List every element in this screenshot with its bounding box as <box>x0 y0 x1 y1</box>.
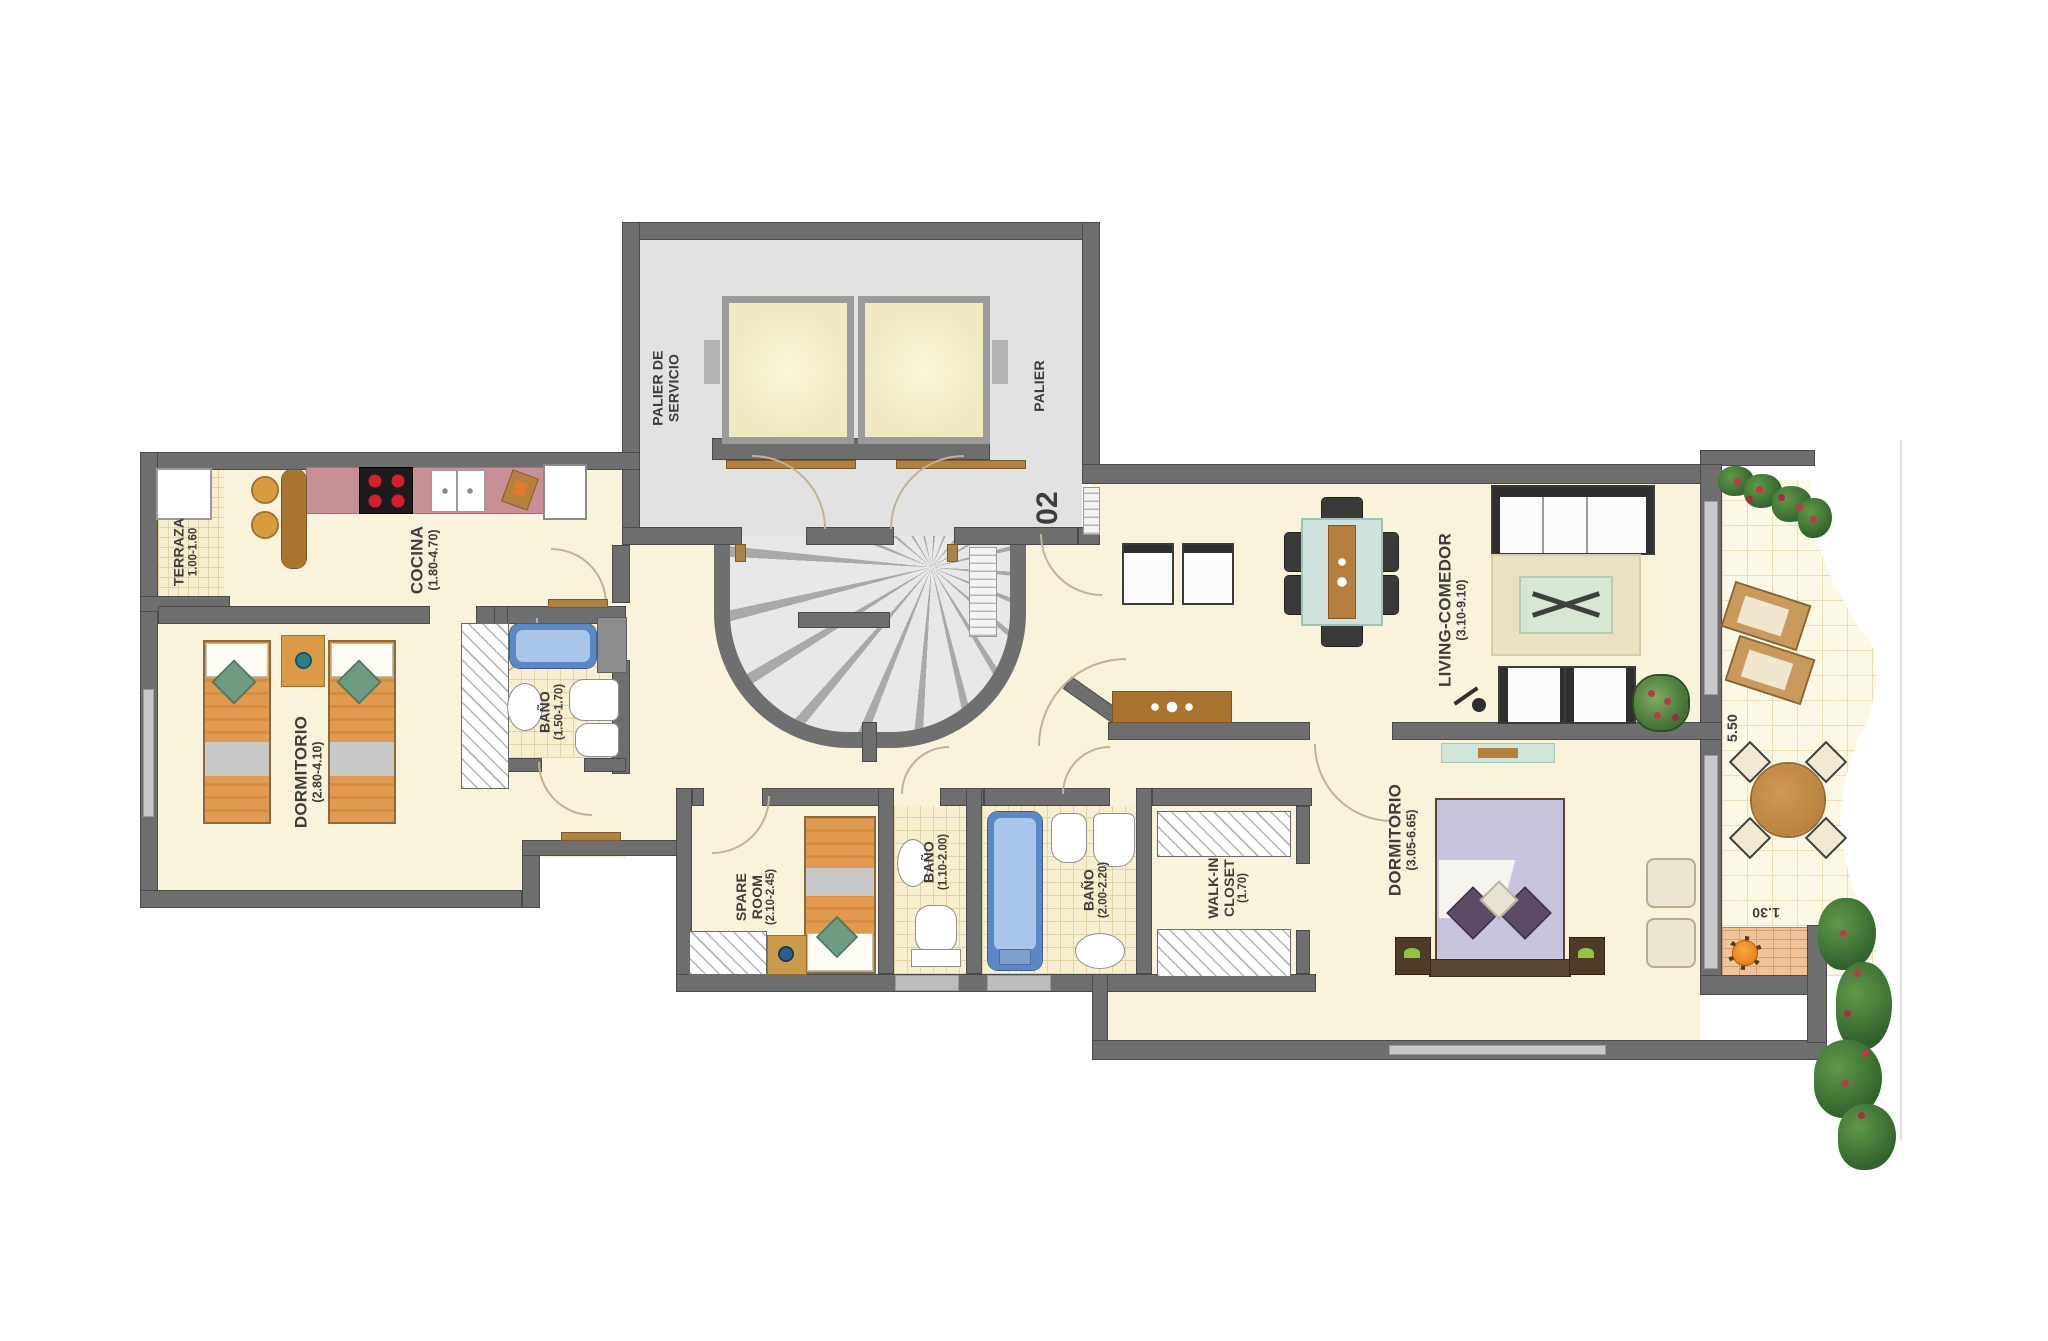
wall-palier-right <box>1082 222 1100 484</box>
duct-hatch-1 <box>896 976 958 990</box>
toilet-bath1 <box>570 680 618 720</box>
breakfast-bar <box>282 470 306 568</box>
flower-bed-top-4 <box>1798 498 1832 538</box>
room-label-dormitorio2: DORMITORIO(3.05-6.65) <box>1385 784 1418 896</box>
nightstand-plant-left <box>1404 948 1420 958</box>
bed-headboard <box>1430 960 1570 976</box>
jamb-stair-right <box>948 545 957 561</box>
dresser-bedroom-center <box>1478 748 1518 758</box>
closet-unit-top <box>1158 812 1290 856</box>
closet-unit-bottom <box>1158 930 1290 976</box>
floor-terrace <box>1722 480 1892 976</box>
plant-living-flowers <box>1648 690 1655 697</box>
closet-spare <box>690 932 766 974</box>
wall-hall-left-a <box>612 545 630 603</box>
wall-dorm1-bottom <box>140 890 522 908</box>
window-bedroom <box>1390 1046 1605 1054</box>
wall-bath3-closet <box>1136 788 1152 974</box>
bush-right-4 <box>1838 1104 1896 1170</box>
window-terrace-1 <box>1705 502 1717 694</box>
dining-chair-right-2 <box>1378 576 1398 614</box>
stove-icon <box>360 468 412 513</box>
elevator-2-panel <box>992 340 1008 384</box>
entry-door-leaf <box>1084 488 1099 534</box>
elevator-1 <box>722 296 854 444</box>
shower-shelf-bath1 <box>598 618 626 672</box>
room-label-cocina: COCINA(1.80-4.70) <box>407 526 440 594</box>
room-label-terraza: TERRAZA1.00-1.60 <box>172 518 201 586</box>
bush-right-dots <box>1840 930 1847 937</box>
wall-block-top-b <box>762 788 894 806</box>
window-terrace-2 <box>1705 756 1717 968</box>
dining-chair-left-1 <box>1285 533 1305 571</box>
entry-chair-1 <box>1124 545 1172 603</box>
bar-stool-1 <box>253 478 277 502</box>
wall-closet-bedroom-b <box>1296 930 1310 974</box>
dining-chair-right-1 <box>1378 533 1398 571</box>
dining-table-runner <box>1329 526 1355 618</box>
wall-palier-left <box>622 222 640 545</box>
plant-living <box>1634 676 1688 730</box>
dimension-terrace: 5.50 <box>1725 714 1741 742</box>
room-label-closet: WALK-IN CLOSET (1.70) <box>1206 851 1250 925</box>
page-edge-line <box>1900 440 1902 1140</box>
room-label-bano1: BAÑO(1.50-1.70) <box>538 684 567 740</box>
room-label-spare: SPARE ROOM (2.10-2.45) <box>734 861 778 933</box>
grill-bowl <box>1733 941 1757 965</box>
toilet-bath3 <box>1094 814 1134 866</box>
wall-bath2-bath3 <box>966 788 982 974</box>
twin-bed-1-blanket <box>205 742 269 776</box>
lamp-spare <box>780 948 792 960</box>
toilet-bath2-tank <box>912 950 960 966</box>
wardrobe-dorm1 <box>462 624 508 788</box>
room-label-bano3: BAÑO(2.00-2.20) <box>1082 862 1111 918</box>
room-label-palier: PALIER <box>1032 360 1048 412</box>
duct-hatch-2 <box>988 976 1050 990</box>
bar-stool-2 <box>253 513 277 537</box>
pouf-1 <box>1648 860 1694 906</box>
pouf-2 <box>1648 920 1694 966</box>
washer <box>158 470 210 518</box>
wall-block-top-a <box>692 788 704 806</box>
sill-kitchen-door <box>549 600 607 607</box>
nightstand-plant-right <box>1578 948 1594 958</box>
room-label-bano2: BAÑO(1.10-2.00) <box>922 834 951 890</box>
room-label-living: LIVING-COMEDOR(3.10-9.10) <box>1435 533 1468 687</box>
terrace-round-table <box>1752 764 1824 836</box>
wall-palier-bottom-1 <box>622 527 742 545</box>
sofa <box>1493 487 1653 553</box>
room-label-palier-servicio: PALIER DE SERVICIO <box>650 344 681 432</box>
wall-kitchen-dorm-a <box>158 606 430 624</box>
lamp-dorm1 <box>297 654 310 667</box>
stair-wall-stub <box>862 722 877 762</box>
wall-closet-bedroom-a <box>1296 806 1310 864</box>
elevator-1-panel <box>704 340 720 384</box>
dining-chair-left-2 <box>1285 576 1305 614</box>
entry-chair-2 <box>1184 545 1232 603</box>
bathtub-bath3-step <box>1000 950 1030 964</box>
sideboard <box>1113 692 1231 722</box>
wall-palier-bottom-2 <box>806 527 894 545</box>
fridge <box>545 466 585 518</box>
wall-spare-bath2 <box>878 788 894 974</box>
stair-handrail <box>970 548 996 636</box>
window-dorm1 <box>144 690 153 816</box>
room-label-dormitorio1: DORMITORIO(2.80-4.10) <box>291 716 324 828</box>
spare-bed-blanket <box>806 868 874 896</box>
wall-living-top <box>1082 464 1722 484</box>
bidet-bath3 <box>1052 814 1086 862</box>
bathtub-bath1-inner <box>516 630 590 662</box>
floor-lamp <box>1472 698 1486 712</box>
wall-notch-top <box>522 840 692 856</box>
elevator-2 <box>858 296 990 444</box>
sill-hall-window <box>562 833 620 840</box>
bidet-bath1 <box>576 724 618 756</box>
stair-landing <box>798 612 890 628</box>
armchair-2 <box>1566 668 1634 722</box>
sink-bath3 <box>1076 934 1124 968</box>
flower-bed-top-dots <box>1734 478 1741 485</box>
dimension-bbq: 1.30 <box>1752 904 1780 920</box>
jamb-stair-left <box>736 545 745 561</box>
wall-living-bedroom-a <box>1108 722 1310 740</box>
bush-right-2 <box>1836 962 1892 1050</box>
wall-left-outer <box>140 452 158 908</box>
wall-palier-top <box>622 222 1100 240</box>
twin-bed-2-blanket <box>330 742 394 776</box>
kitchen-sink <box>432 471 484 511</box>
wall-block-top-e <box>1152 788 1312 806</box>
floor-plan: TERRAZA1.00-1.60 COCINA(1.80-4.70) DORMI… <box>0 0 2048 1341</box>
toilet-bath2 <box>916 906 956 952</box>
unit-number: 02 <box>1031 491 1065 525</box>
armchair-1 <box>1500 668 1568 722</box>
bathtub-bath3-inner <box>994 818 1036 950</box>
